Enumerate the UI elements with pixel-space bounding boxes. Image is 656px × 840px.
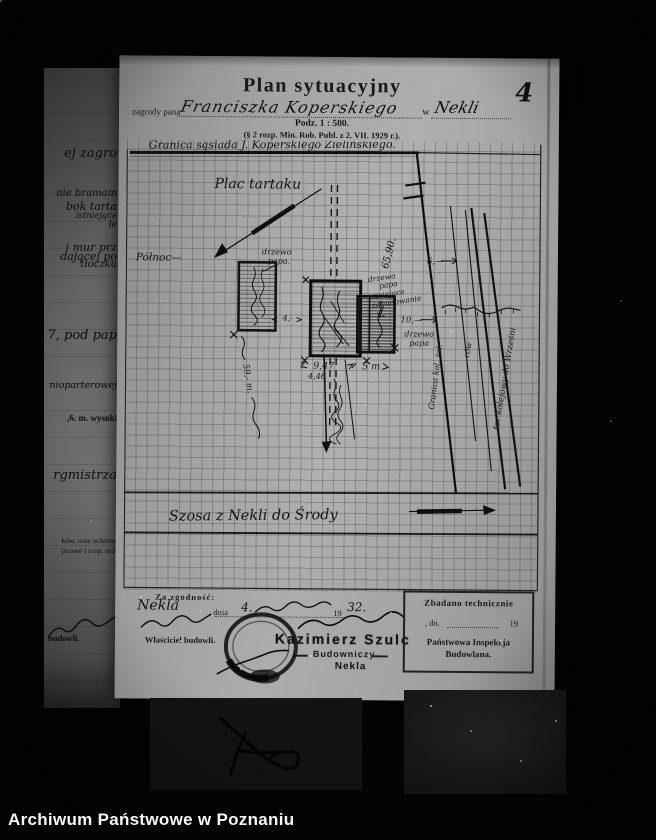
inspection-year: 19 [510,618,519,628]
behind-fragment: tłoczku [80,259,117,270]
distance-note: 59,- m. [235,336,262,440]
location-handwritten: Nekli [435,98,479,117]
measure-4: 4,- [281,314,293,323]
measure-10: 10,— [400,315,423,325]
behind-fragment: ków, oraz ochrony [61,536,117,545]
date-scribble [255,601,331,613]
behind-fragment: rgmistrza [53,468,117,483]
site-label: Plac tartaku [213,176,301,193]
faint-scribble [150,698,362,790]
road-direction-arrow [409,505,496,516]
railway-label: tor kolejowy do Wrześni [491,326,519,430]
material-label-3a: drzewo [404,330,434,339]
year-handwritten: 32. [347,600,366,614]
behind-signature-scribble [46,608,120,658]
behind-fragment: ej zagro [64,146,117,161]
inspection-line4: Budowlana. [405,649,532,660]
north-label: Północ— [135,251,182,263]
second-signature-scribble [217,650,289,675]
behind-page-left: ej zagro nie bramam bok tarta istniejące… [44,68,120,708]
stamp-ornament-bar [373,655,388,657]
site-plan-grid: Granica sąsiada J. Koperskiego Zieliński… [123,139,542,592]
page-number: 4 [515,78,533,108]
owner-prefix-label: zagrody pana [132,106,180,116]
behind-fragment: le [109,220,117,230]
stamp-builder-role: Budowniczy [313,649,376,659]
stamp-ornament-bar [293,655,308,657]
inspection-box: Zbadano technicznie , dn. 19 Państwowa I… [403,591,535,674]
site-plan-drawing: Granica sąsiada J. Koperskiego Zieliński… [123,139,542,592]
material-label-3b: papa [409,339,429,348]
material-label-1b: papa. [268,256,290,265]
measure-5m: 5 m [362,361,380,372]
boundary-top-line [130,150,419,158]
material-label-1a: drzewo [262,247,292,256]
inspection-line3: Państwowa Inspekcja [405,637,532,648]
page-edge-shadow [119,55,559,68]
ditch-label: rów [462,341,473,358]
behind-fragment: ,6. m. wysoki [67,413,117,423]
faint-page-bottom-right [404,690,566,794]
inspection-line1: Zbadano technicznie [405,598,532,609]
behind-fragment: nioparterowej [49,380,117,391]
inspection-dn-label: , dn. [425,618,440,628]
building-left [238,262,276,330]
location-prefix: w [422,107,429,118]
terrain-profile [441,305,520,317]
behind-fragment: nie bramam [56,188,117,199]
distance-note-value: 59,- m. [240,363,255,394]
behind-fragment: 7, pod pap [47,328,117,343]
road-label: Szosa z Nekli do Środy [169,505,339,525]
page-fold-crease [542,59,550,702]
measure-446: 4,46 [307,372,326,381]
archive-caption: Archiwum Państwowe w Poznaniu [8,810,294,830]
place-handwritten: Nekla [137,597,179,613]
behind-fragment: jscowe i rozp. ord. [61,546,117,555]
owner-name-handwritten: Franciszka Koperskiego [181,97,398,118]
photo-negative-background: ej zagro nie bramam bok tarta istniejące… [0,0,656,840]
page-title: Plan sytuacyjny [119,73,525,99]
faint-page-bottom-left [150,698,362,790]
measure-6590: 65,90. [380,237,399,271]
inspection-dotted-line [447,627,499,628]
dust-specks [0,0,2,2]
document-page: Plan sytuacyjny 4 zagrody pana Franciszk… [114,55,559,701]
building-middle [310,281,361,356]
measure-6: 6,— [427,257,444,267]
annotation-block: drzewo papa istniejące zabudowanie [365,268,422,310]
measure-10-dash [420,317,436,323]
date-handwritten: 4. [241,600,253,614]
owner-signature-scribble [141,613,211,628]
stamp-builder-place: Nekla [335,661,367,672]
stamp-builder-name: Kazimierz Szulc [275,631,411,648]
owner-of-building-label: Właściciel budowli. [145,634,215,645]
date-dotted-line [215,616,343,618]
round-stamp [226,614,297,684]
boundary-top-label: Granica sąsiada J. Koperskiego Zieliński… [149,139,396,151]
year-printed: 19 [333,608,342,618]
